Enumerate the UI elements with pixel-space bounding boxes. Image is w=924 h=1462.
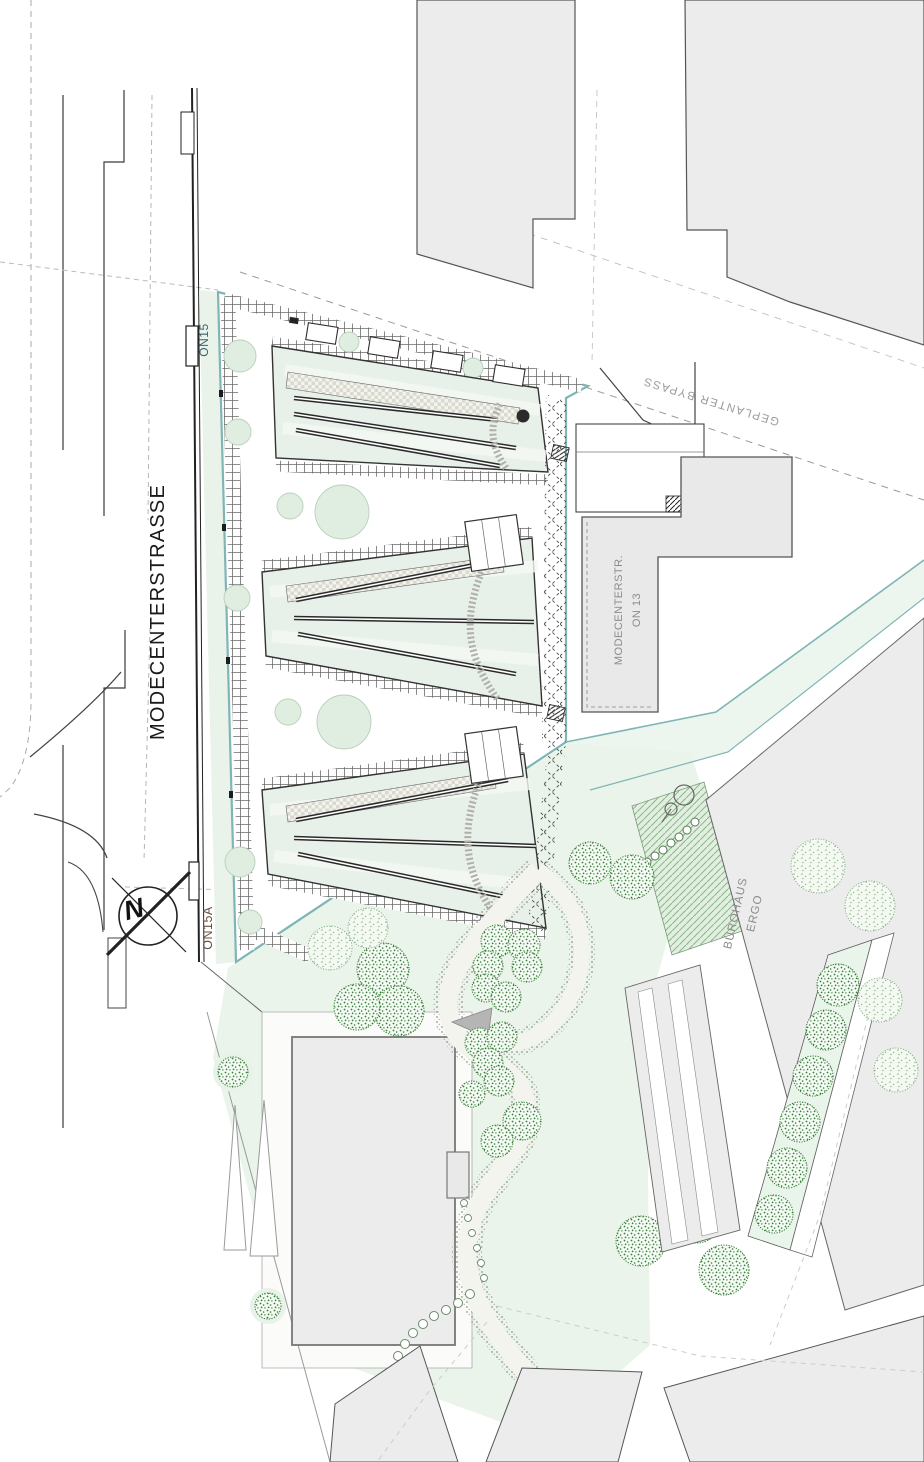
- entrance-mark: [229, 791, 233, 798]
- tree-dark: [218, 1057, 248, 1087]
- junction-curb-arc: [30, 672, 121, 757]
- entrance-mark: [219, 390, 223, 397]
- tree-dark: [512, 952, 542, 982]
- canopy-x-strip: [542, 394, 566, 740]
- tram-platform: [181, 112, 194, 154]
- tree-light: [308, 926, 352, 970]
- tree-dark: [334, 984, 380, 1030]
- tree-pale: [463, 358, 483, 378]
- tree-pale: [225, 847, 255, 877]
- site-plan-canvas: GEPLANTER BYPASS MODECENTERSTR. ON 13: [0, 0, 924, 1462]
- tree-dark: [255, 1293, 281, 1319]
- tree-pale: [315, 485, 369, 539]
- tree-pale: [224, 340, 256, 372]
- tree-dark: [699, 1245, 749, 1295]
- junction-curb-arc: [34, 814, 107, 858]
- roof-access-dark: [517, 410, 530, 423]
- tree-dark: [487, 1022, 517, 1052]
- on13-label-line1: MODECENTERSTR.: [613, 555, 625, 665]
- tree-dark: [569, 842, 611, 884]
- building-south-east: [664, 1316, 924, 1462]
- tree-dark: [610, 855, 654, 899]
- tree-pale: [238, 910, 262, 934]
- building-southwest: [292, 1037, 455, 1345]
- entrance-mark: [222, 524, 226, 531]
- north-letter: N: [121, 892, 148, 926]
- project-site: [218, 292, 588, 962]
- street-modecenterstrasse: [0, 0, 262, 1128]
- tree-dark: [459, 1081, 485, 1107]
- tree-dark: [484, 1066, 514, 1096]
- building-southwest-annex: [447, 1152, 469, 1198]
- curb-line-jogged: [104, 90, 124, 516]
- tree-pale: [317, 695, 371, 749]
- tree-dark: [374, 986, 424, 1036]
- traffic-island: [108, 938, 126, 1008]
- stop-on15-label: ON15: [197, 323, 211, 356]
- tree-light: [348, 908, 388, 948]
- tree-pale: [277, 493, 303, 519]
- tram-platform-on15a: [189, 862, 199, 900]
- on13-block: MODECENTERSTR. ON 13: [576, 424, 792, 712]
- tree-pale: [275, 699, 301, 725]
- bypass-label: GEPLANTER BYPASS: [641, 374, 780, 427]
- junction-curb-arc: [68, 862, 103, 932]
- on13-label-line2: ON 13: [631, 593, 643, 627]
- building-north-west: [417, 0, 575, 288]
- site-plan-drawing: GEPLANTER BYPASS MODECENTERSTR. ON 13: [0, 0, 924, 1462]
- crossing-dashed: [0, 262, 218, 290]
- lane-dashed: [148, 95, 152, 520]
- street-name-label: MODECENTERSTRASSE: [147, 484, 169, 740]
- existing-buildings-north: [417, 0, 924, 345]
- tree-dark: [481, 1125, 513, 1157]
- entrance-mark: [226, 657, 230, 664]
- tree-pale: [225, 419, 251, 445]
- building-north-east: [685, 0, 924, 345]
- tree-pale: [224, 585, 250, 611]
- annex-box: [465, 515, 523, 572]
- curb-line-jogged: [104, 630, 125, 930]
- street-centerline-dashed: [0, 0, 31, 797]
- north-arrow: N: [107, 872, 190, 955]
- stop-on15a-label: ON15A: [201, 906, 215, 950]
- bypass-dashed-stub: [592, 90, 597, 365]
- tree-dark: [491, 982, 521, 1012]
- tree-pale: [339, 332, 359, 352]
- rooftop-vent: [290, 317, 299, 323]
- annex-box: [465, 727, 523, 784]
